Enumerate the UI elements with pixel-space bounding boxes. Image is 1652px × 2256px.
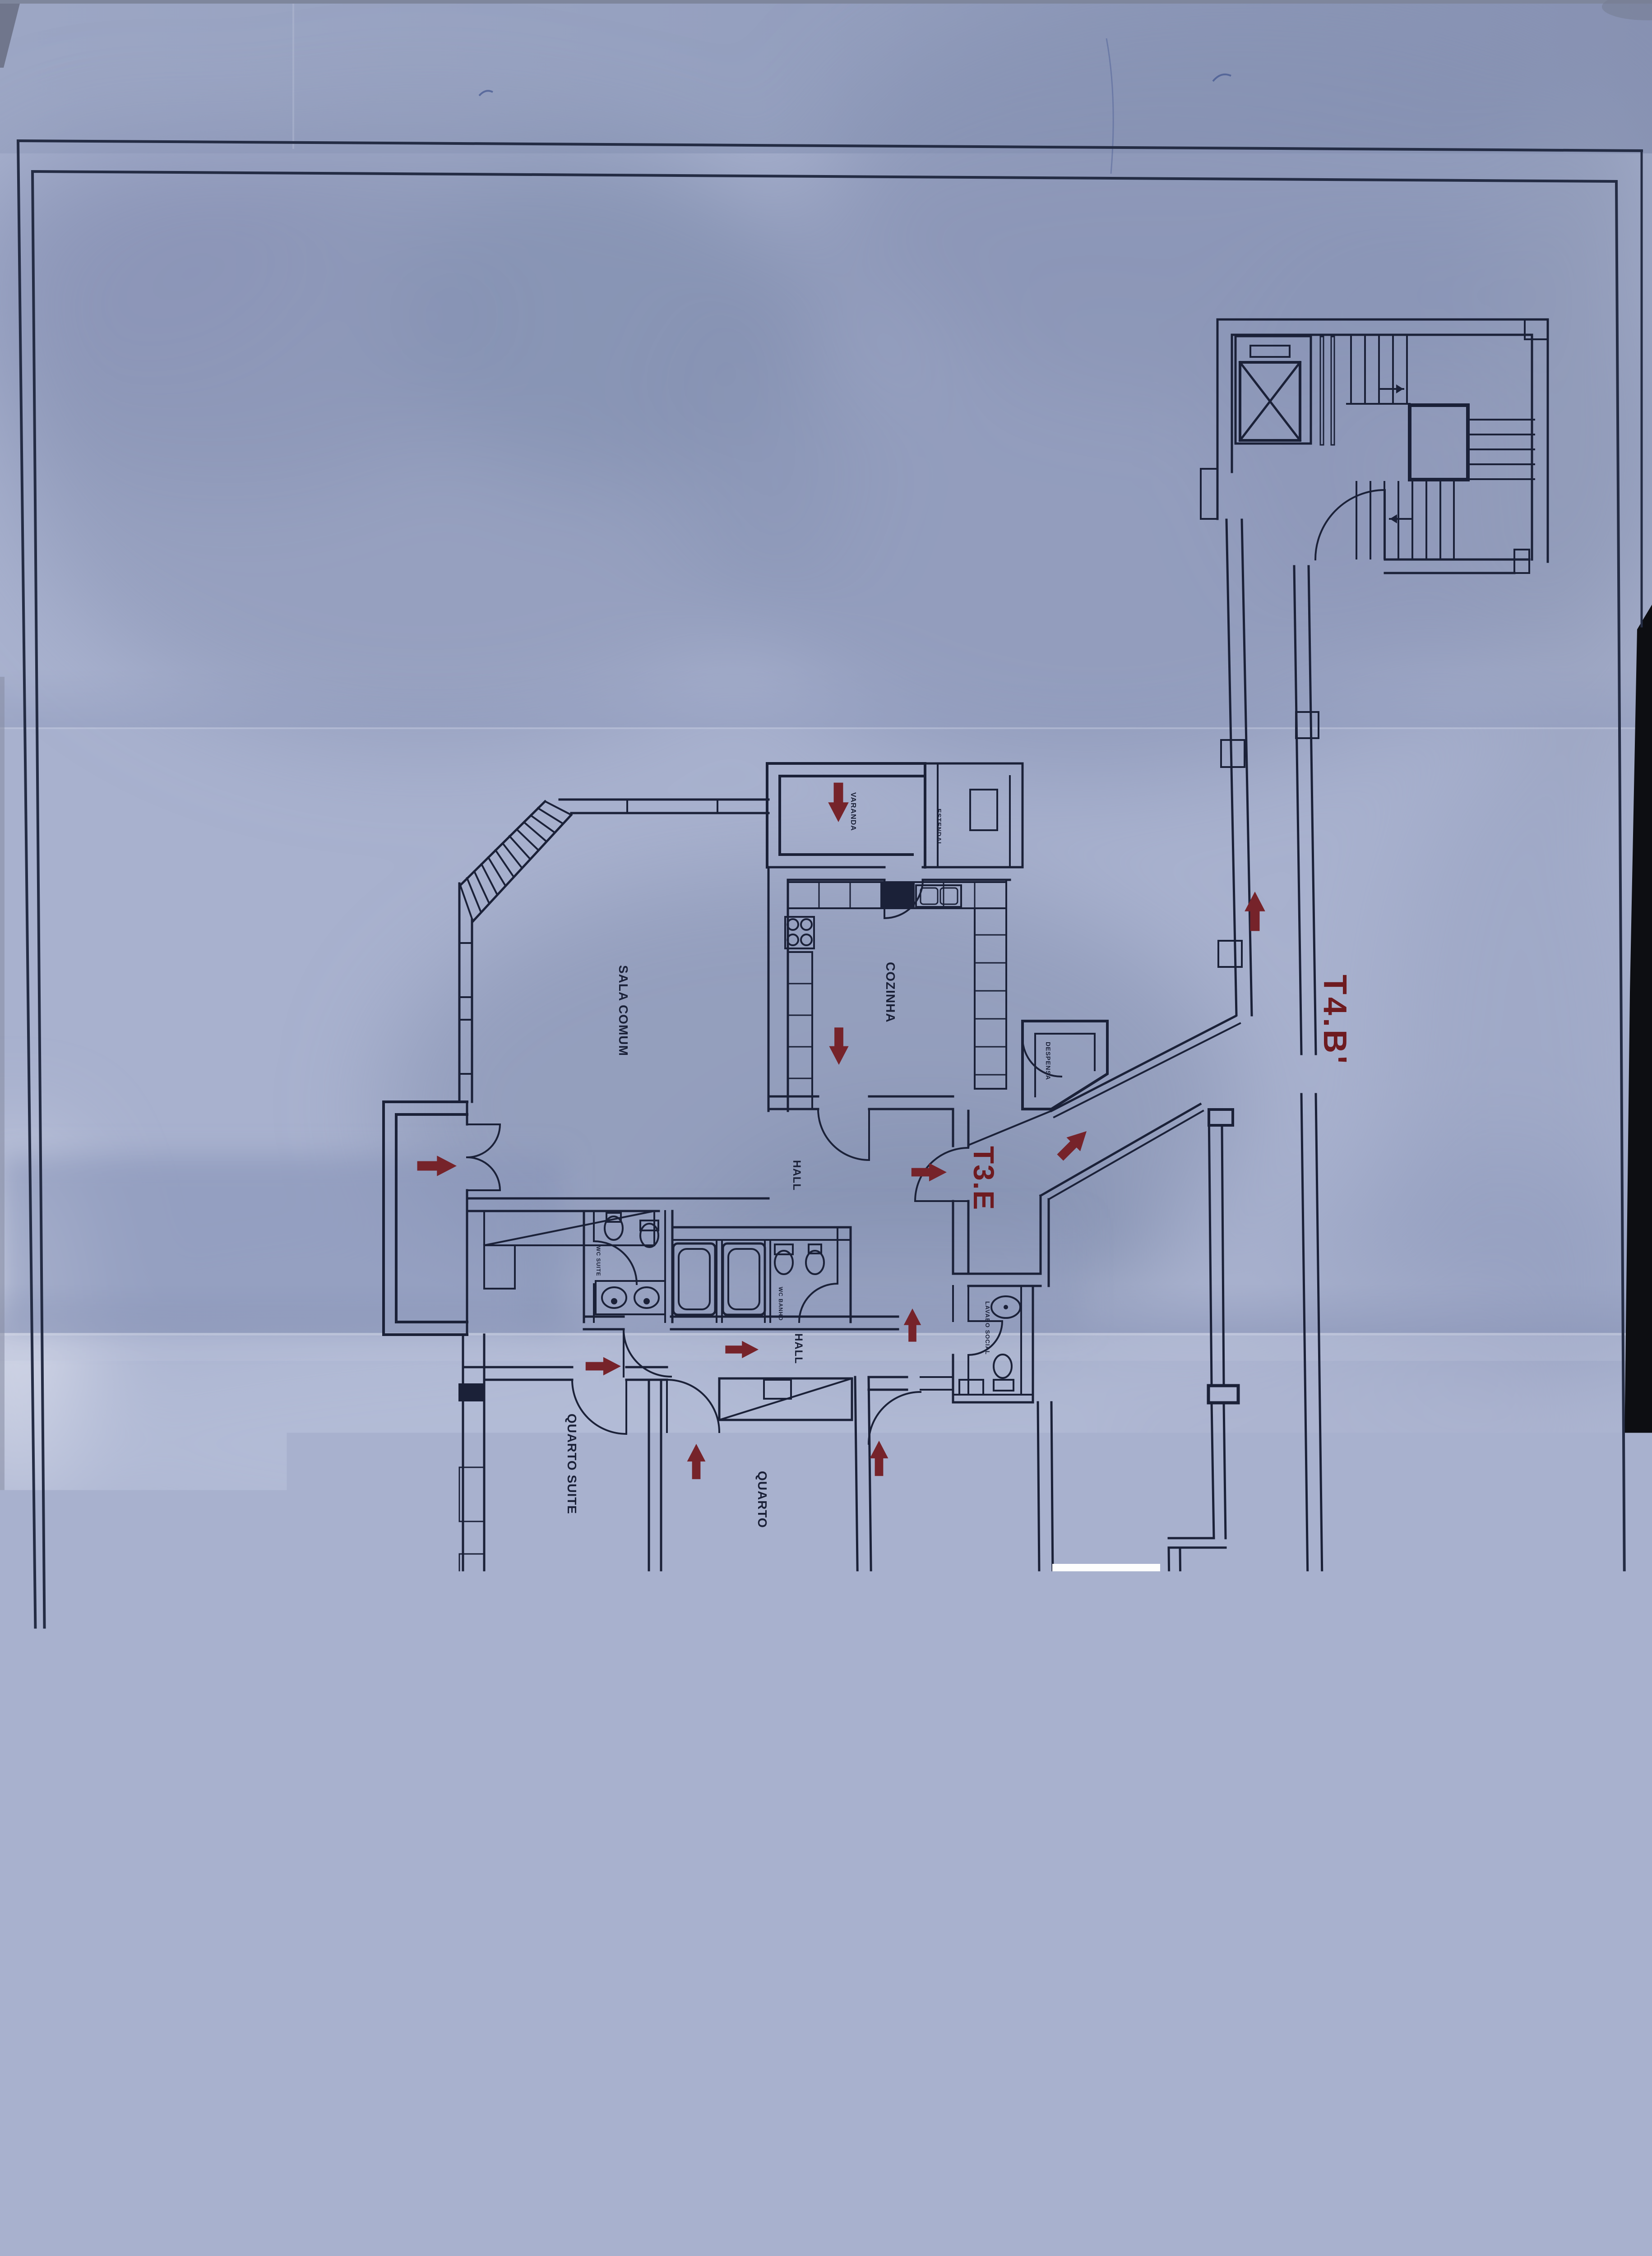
svg-text:WC BANHO: WC BANHO [777, 1287, 784, 1321]
svg-text:HALL: HALL [791, 1160, 803, 1191]
svg-text:QUARTO SUITE: QUARTO SUITE [926, 1588, 940, 1689]
svg-text:5: 5 [112, 2176, 143, 2191]
svg-text:REQUERENTE:: REQUERENTE: [202, 1705, 211, 1772]
svg-text:QUARTO SUITE: QUARTO SUITE [565, 1414, 579, 1514]
svg-text:ESTENDAL: ESTENDAL [935, 809, 943, 846]
svg-text:08: 08 [136, 2076, 184, 2125]
svg-text:LAVABO SOCIAL: LAVABO SOCIAL [984, 1301, 991, 1355]
svg-text:SAÍDA DE EMERGÊNCIA EM CASO DE: SAÍDA DE EMERGÊNCIA EM CASO DE INCÊNDIO [583, 1754, 595, 2025]
svg-text:1:100: 1:100 [65, 2157, 80, 2194]
svg-text:T4.C': T4.C' [1247, 1691, 1282, 1776]
svg-text:QUARTO: QUARTO [755, 1471, 769, 1528]
svg-text:31: 31 [1197, 2148, 1217, 2169]
svg-text:SOCIEDADE DE CONSTRUÇÕES: SOCIEDADE DE CONSTRUÇÕES [118, 1720, 126, 1837]
svg-text:WC SUITE: WC SUITE [595, 1246, 602, 1276]
svg-text:COZINHA: COZINHA [884, 962, 898, 1023]
svg-text:DESPENSA: DESPENSA [1045, 1042, 1052, 1080]
svg-text:ABRIL 2005: ABRIL 2005 [63, 1938, 80, 2028]
svg-text:ESCALA:: ESCALA: [71, 2077, 80, 2118]
svg-text:DIGITALIZADO: DIGITALIZADO [1546, 2097, 1569, 2256]
svg-text:Está conforme o original: Está conforme o original [1234, 2056, 1249, 2225]
svg-text:19: 19 [1202, 2251, 1221, 2256]
svg-text:LOCAL: Quinta da Beloura II: LOCAL: Quinta da Beloura II Lote EA10 [106, 1940, 119, 2159]
svg-text:VARANDA: VARANDA [849, 792, 857, 831]
svg-text:T3.E: T3.E [967, 1146, 1000, 1211]
svg-text:20: 20 [206, 2233, 236, 2256]
svg-text:SALA COMUM: SALA COMUM [616, 965, 630, 1056]
svg-text:T4.B': T4.B' [1317, 975, 1353, 1066]
svg-text:PLANTA SIMPLIFICADA DO ACESSO: PLANTA SIMPLIFICADA DO ACESSO AO FOGO [198, 1964, 215, 2256]
svg-text:HALL: HALL [792, 1333, 805, 1364]
